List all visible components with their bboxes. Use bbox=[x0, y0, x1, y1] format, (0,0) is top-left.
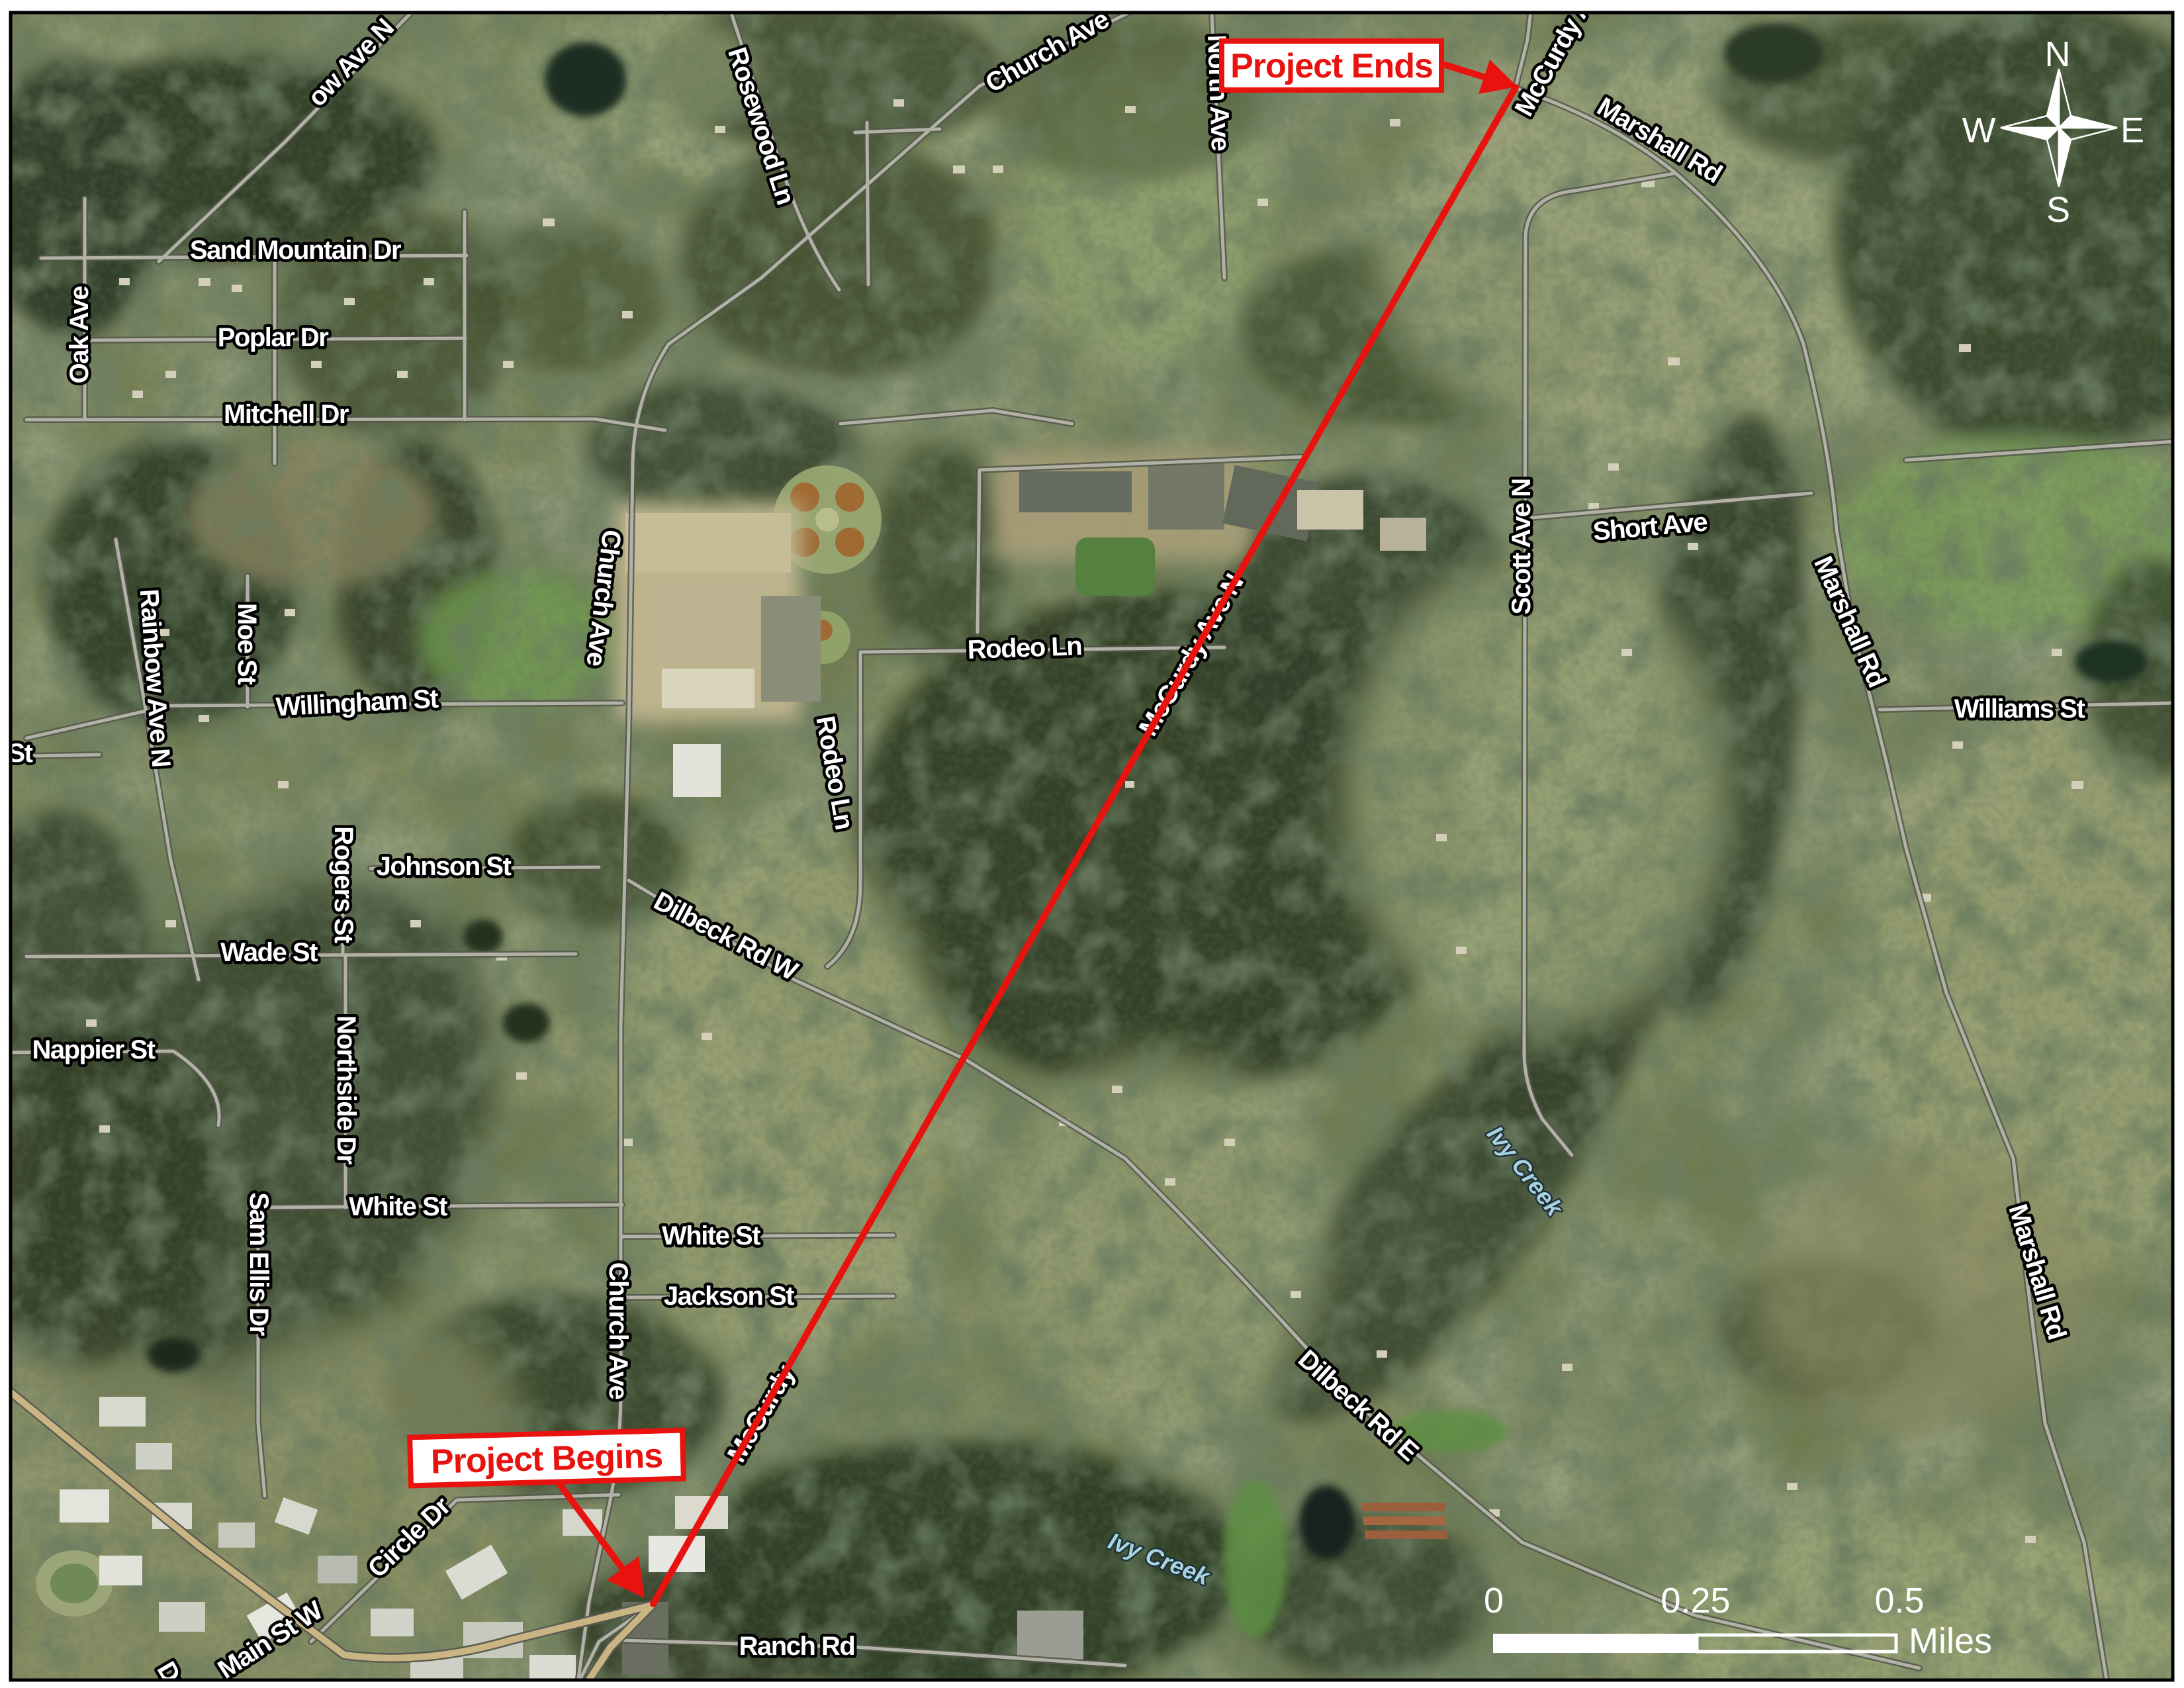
svg-text:Wade St: Wade St bbox=[220, 938, 318, 967]
svg-text:Sand Mountain Dr: Sand Mountain Dr bbox=[190, 236, 401, 265]
svg-text:Rodeo Ln: Rodeo Ln bbox=[967, 632, 1082, 665]
svg-text:Project Ends: Project Ends bbox=[1230, 47, 1433, 85]
svg-text:Moe St: Moe St bbox=[232, 603, 261, 684]
svg-text:N: N bbox=[2045, 34, 2071, 74]
svg-text:White St: White St bbox=[662, 1221, 760, 1250]
svg-text:Mitchell Dr: Mitchell Dr bbox=[224, 400, 349, 429]
svg-text:E: E bbox=[2120, 111, 2144, 150]
svg-text:S: S bbox=[2046, 190, 2070, 230]
svg-text:0: 0 bbox=[1484, 1581, 1504, 1620]
svg-text:W: W bbox=[1962, 111, 1996, 150]
svg-text:0.5: 0.5 bbox=[1874, 1581, 1924, 1620]
svg-text:Church Ave: Church Ave bbox=[604, 1262, 633, 1399]
svg-text:Nappier St: Nappier St bbox=[32, 1035, 155, 1064]
svg-text:Miles: Miles bbox=[1909, 1621, 1992, 1661]
svg-text:Johnson St: Johnson St bbox=[377, 852, 512, 881]
svg-text:Ranch Rd: Ranch Rd bbox=[739, 1632, 855, 1661]
svg-text:0.25: 0.25 bbox=[1661, 1581, 1730, 1620]
svg-text:Sam Ellis Dr: Sam Ellis Dr bbox=[244, 1192, 273, 1335]
svg-text:Jackson St: Jackson St bbox=[664, 1282, 794, 1311]
svg-text:Project Begins: Project Begins bbox=[430, 1436, 663, 1481]
svg-text:Oak Ave: Oak Ave bbox=[65, 286, 94, 383]
svg-text:Northside Dr: Northside Dr bbox=[332, 1015, 361, 1164]
svg-text:Rogers St: Rogers St bbox=[329, 826, 358, 943]
svg-text:Scott Ave N: Scott Ave N bbox=[1507, 479, 1536, 614]
svg-text:White St: White St bbox=[349, 1192, 447, 1221]
svg-text:Williams St: Williams St bbox=[1954, 694, 2085, 724]
svg-text:Poplar Dr: Poplar Dr bbox=[218, 323, 328, 352]
